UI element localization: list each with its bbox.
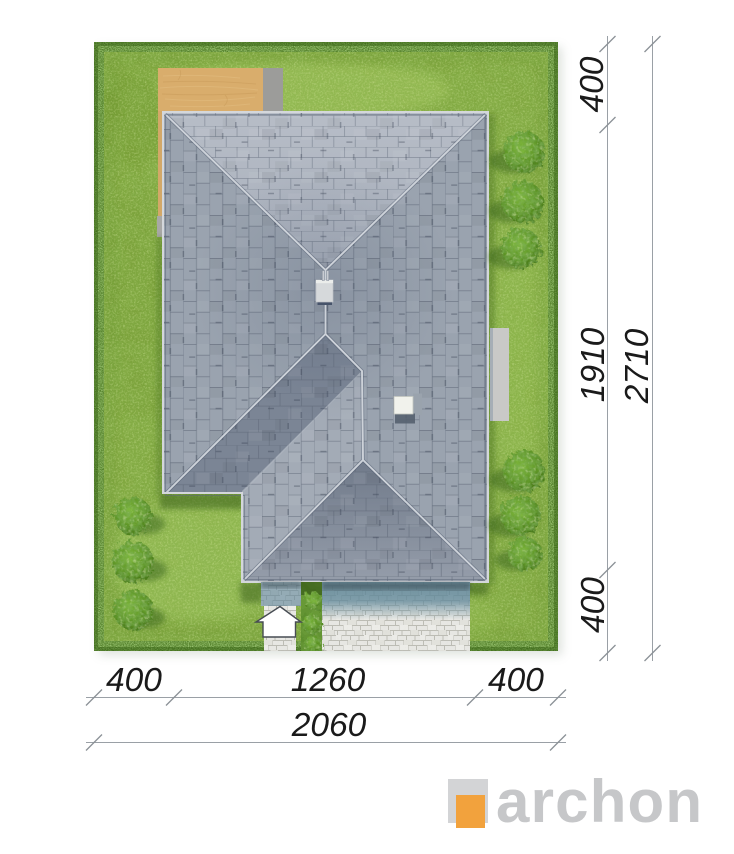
- svg-text:1260: 1260: [291, 662, 366, 699]
- svg-text:1910: 1910: [575, 327, 612, 402]
- svg-text:2060: 2060: [291, 707, 367, 744]
- svg-text:400: 400: [574, 56, 611, 112]
- svg-text:archon: archon: [496, 768, 703, 835]
- svg-text:2710: 2710: [619, 328, 656, 404]
- svg-text:400: 400: [106, 662, 162, 699]
- svg-text:400: 400: [488, 662, 544, 699]
- svg-text:400: 400: [575, 577, 612, 633]
